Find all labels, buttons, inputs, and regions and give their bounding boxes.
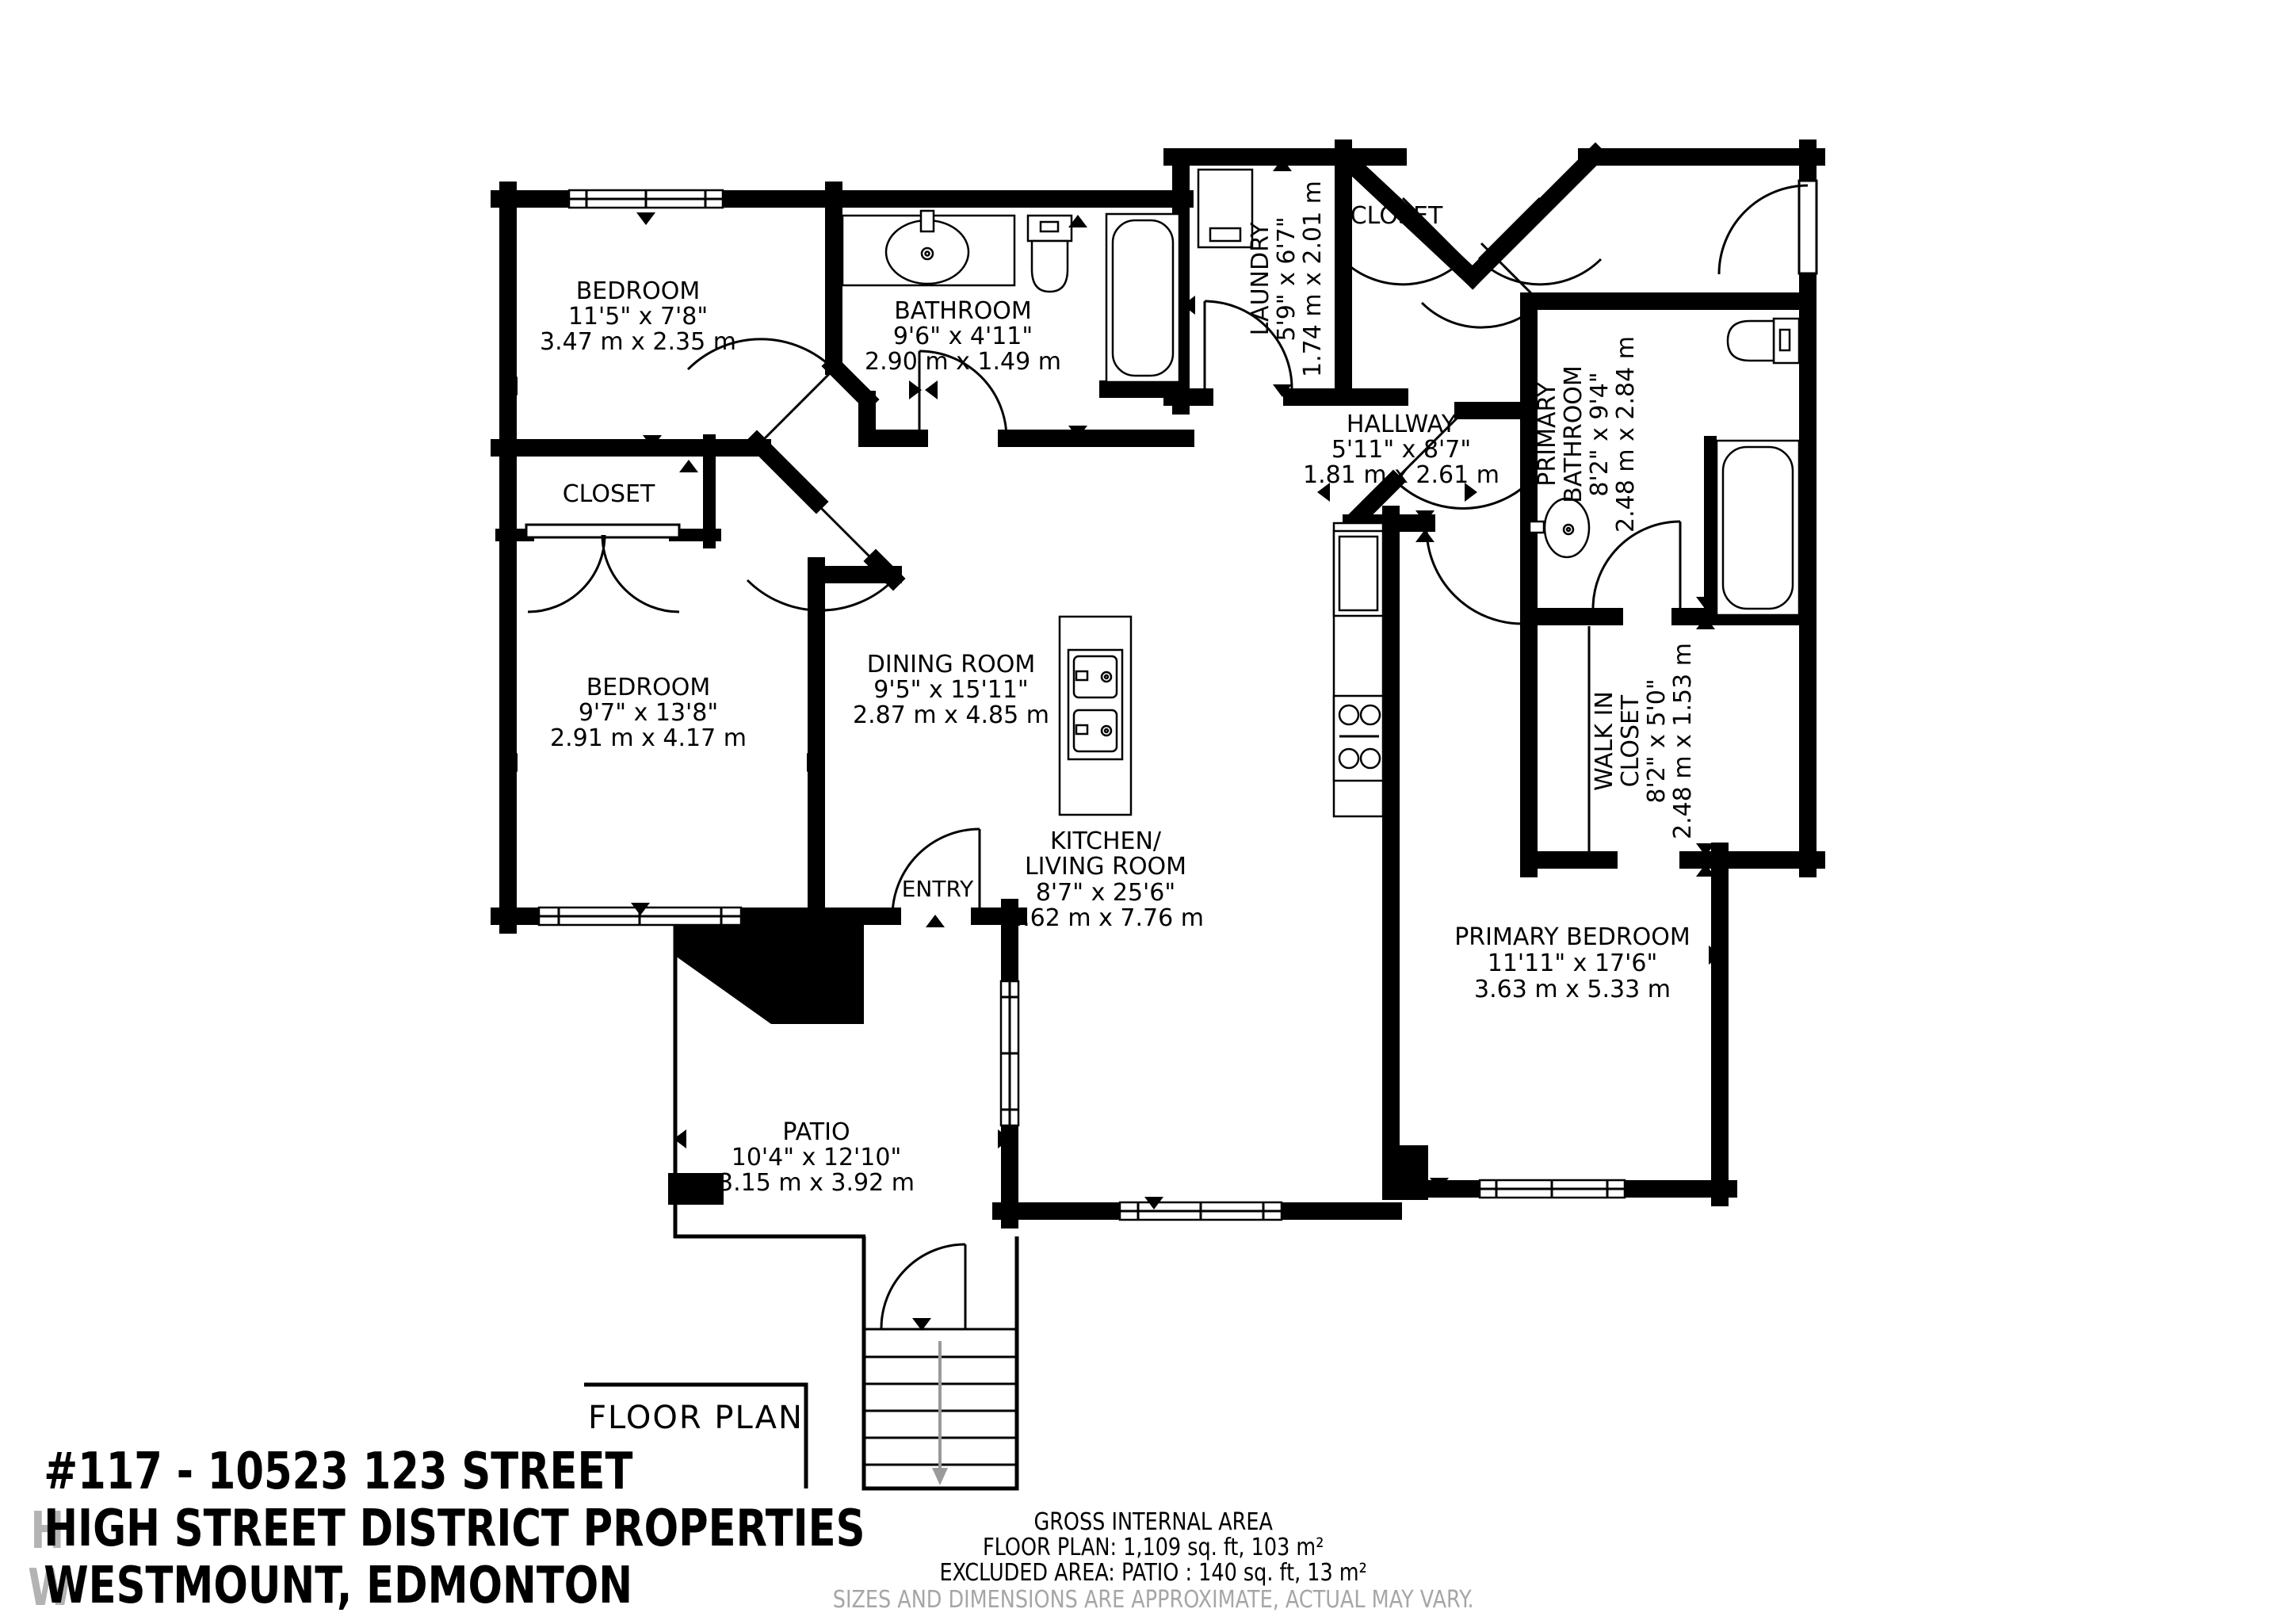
area-summary: GROSS INTERNAL AREA FLOOR PLAN: 1,109 sq… [833,1507,1474,1614]
room-label-bathroom: BATHROOM 9'6" x 4'11" 2.90 m x 1.49 m [865,297,1061,376]
dim-arrow [925,380,938,399]
fridge-icon [1334,531,1383,616]
gia-floor-plan: FLOOR PLAN: 1,109 sq. ft, 103 m² [983,1533,1324,1561]
room-label-laundry: LAUNDRY 5'9" x 6'7" 1.74 m x 2.01 m [1247,181,1327,377]
room-label-walk-in-closet: WALK IN CLOSET 8'2" x 5'0" 2.48 m x 1.53… [1591,643,1697,839]
svg-text:8'2" x 9'4": 8'2" x 9'4" [1586,372,1614,496]
svg-text:9'7" x 13'8": 9'7" x 13'8" [579,699,718,727]
door-primary-bedroom [1427,528,1522,624]
room-label-closet-left: CLOSET [563,480,655,508]
svg-text:11'11" x 17'6": 11'11" x 17'6" [1488,950,1658,977]
title-block: H W #117 - 10523 123 STREET HIGH STREET … [28,1441,865,1617]
room-label-primary-bathroom: PRIMARY BATHROOM 8'2" x 9'4" 2.48 m x 2.… [1534,336,1640,533]
svg-text:DINING ROOM: DINING ROOM [867,651,1035,678]
door-entry [892,829,980,916]
patio-wall-block [668,1173,724,1205]
gia-heading: GROSS INTERNAL AREA [1033,1507,1272,1536]
room-label-closet-top: CLOSET [1350,202,1443,230]
svg-text:2.90 m x 1.49 m: 2.90 m x 1.49 m [865,348,1061,376]
address-line-3: WESTMOUNT, EDMONTON [44,1555,632,1614]
svg-text:PRIMARY: PRIMARY [1534,382,1561,487]
svg-text:5'9" x 6'7": 5'9" x 6'7" [1273,216,1301,341]
primary-toilet-icon [1728,319,1799,363]
plan-title: FLOOR PLAN [588,1400,804,1436]
svg-text:5'11" x 8'7": 5'11" x 8'7" [1331,436,1471,464]
room-label-hallway: HALLWAY 5'11" x 8'7" 1.81 m x 2.61 m [1303,411,1499,489]
primary-sink-icon [1530,499,1589,557]
window-kitchen [1120,1202,1282,1220]
door-vestibule-entry [1719,181,1817,274]
washer-icon [1198,170,1252,247]
svg-text:BATHROOM: BATHROOM [894,297,1032,325]
gia-excluded: EXCLUDED AREA: PATIO : 140 sq. ft, 13 m² [940,1558,1367,1587]
window-patio [1001,981,1018,1125]
svg-text:BEDROOM: BEDROOM [586,674,711,701]
stove-icon [1334,696,1383,781]
svg-text:11'5" x 7'8": 11'5" x 7'8" [568,303,708,331]
svg-text:CLOSET: CLOSET [563,480,655,508]
room-label-patio: PATIO 10'4" x 12'10" 3.15 m x 3.92 m [718,1118,915,1197]
gia-disclaimer: SIZES AND DIMENSIONS ARE APPROXIMATE, AC… [833,1585,1474,1614]
toilet-icon [1028,216,1072,292]
room-label-primary-bedroom: PRIMARY BEDROOM 11'11" x 17'6" 3.63 m x … [1454,923,1690,1003]
svg-text:1.81 m x 2.61 m: 1.81 m x 2.61 m [1303,461,1499,489]
svg-text:ENTRY: ENTRY [902,876,974,902]
kitchen-island [1060,617,1131,815]
stairs [864,1236,1017,1488]
svg-text:3.47 m x 2.35 m: 3.47 m x 2.35 m [540,328,736,356]
floor-plan-page: BEDROOM 11'5" x 7'8" 3.47 m x 2.35 m BAT… [0,0,2296,1624]
address-line-1: #117 - 10523 123 STREET [44,1441,633,1500]
svg-text:WALK IN: WALK IN [1591,691,1618,791]
bathtub-icon [1106,214,1179,382]
svg-text:8'2" x 5'0": 8'2" x 5'0" [1643,678,1671,803]
svg-text:CLOSET: CLOSET [1350,202,1443,230]
door-patio-stairs [881,1244,965,1328]
window-bedroom1 [569,190,723,208]
window-primary-bedroom [1480,1180,1625,1198]
svg-text:LAUNDRY: LAUNDRY [1247,222,1274,335]
room-label-dining-room: DINING ROOM 9'5" x 15'11" 2.87 m x 4.85 … [853,651,1049,729]
room-label-bedroom-2: BEDROOM 9'7" x 13'8" 2.91 m x 4.17 m [550,674,747,752]
svg-text:2.48 m x 2.84 m: 2.48 m x 2.84 m [1612,336,1640,533]
svg-text:2.48 m x 1.53 m: 2.48 m x 1.53 m [1669,643,1697,839]
svg-text:PATIO: PATIO [782,1118,850,1146]
room-label-entry: ENTRY [902,876,974,902]
svg-text:2.87 m x 4.85 m: 2.87 m x 4.85 m [853,701,1049,729]
svg-text:2.91 m x 4.17 m: 2.91 m x 4.17 m [550,724,747,752]
svg-text:9'6" x 4'11": 9'6" x 4'11" [893,323,1033,350]
address-line-2: HIGH STREET DISTRICT PROPERTIES [44,1498,865,1557]
door-walkin-bathroom [1593,522,1680,609]
primary-bathtub-icon [1717,441,1799,615]
dim-arrow [926,915,945,927]
svg-text:BATHROOM: BATHROOM [1560,365,1587,503]
svg-text:CLOSET: CLOSET [1617,694,1645,787]
dim-arrow [679,460,698,472]
dim-arrow [636,212,655,225]
svg-text:3.63 m x 5.33 m: 3.63 m x 5.33 m [1474,976,1671,1003]
svg-text:9'5" x 15'11": 9'5" x 15'11" [873,676,1028,704]
svg-text:10'4" x 12'10": 10'4" x 12'10" [732,1144,902,1171]
svg-text:PRIMARY BEDROOM: PRIMARY BEDROOM [1454,923,1690,951]
svg-text:1.74 m x 2.01 m: 1.74 m x 2.01 m [1299,181,1327,377]
svg-text:8'7" x 25'6": 8'7" x 25'6" [1036,879,1175,907]
svg-text:KITCHEN/: KITCHEN/ [1050,827,1162,855]
room-label-kitchen-living: KITCHEN/ LIVING ROOM 8'7" x 25'6" 2.62 m… [1007,827,1204,932]
vanity-sink-icon [842,211,1014,285]
svg-text:HALLWAY: HALLWAY [1347,411,1457,438]
door-closet-bifold [526,525,679,612]
svg-text:2.62 m x 7.76 m: 2.62 m x 7.76 m [1007,904,1204,932]
svg-text:LIVING ROOM: LIVING ROOM [1025,853,1186,881]
svg-text:BEDROOM: BEDROOM [576,277,701,305]
stairs-arrowhead [932,1468,948,1485]
room-label-bedroom-1: BEDROOM 11'5" x 7'8" 3.47 m x 2.35 m [540,277,736,356]
svg-text:3.15 m x 3.92 m: 3.15 m x 3.92 m [718,1169,915,1197]
